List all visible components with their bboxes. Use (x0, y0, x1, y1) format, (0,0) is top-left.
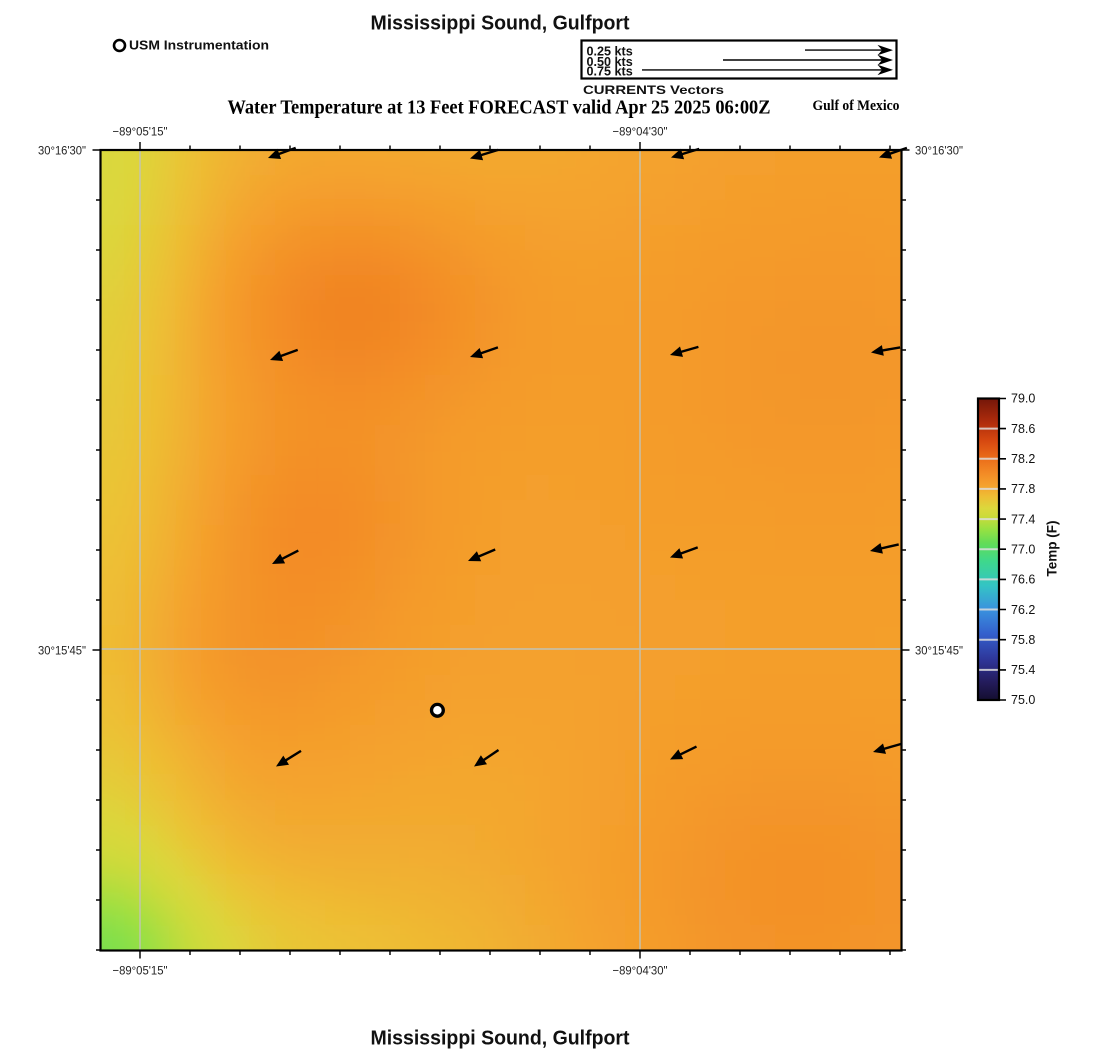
svg-text:75.4: 75.4 (1011, 663, 1035, 677)
svg-text:77.0: 77.0 (1011, 543, 1035, 557)
svg-text:−89°04'30": −89°04'30" (613, 964, 668, 978)
svg-text:Temp (F): Temp (F) (1045, 521, 1060, 577)
svg-text:−89°05'15": −89°05'15" (113, 124, 168, 138)
svg-text:Water Temperature at 13 Feet F: Water Temperature at 13 Feet FORECAST va… (228, 97, 771, 119)
svg-text:30°16'30": 30°16'30" (38, 144, 86, 158)
svg-text:Mississippi Sound, Gulfport: Mississippi Sound, Gulfport (371, 12, 630, 35)
svg-text:30°16'30": 30°16'30" (915, 144, 963, 158)
svg-text:Mississippi Sound, Gulfport: Mississippi Sound, Gulfport (371, 1027, 630, 1050)
svg-text:77.8: 77.8 (1011, 482, 1035, 496)
svg-text:−89°04'30": −89°04'30" (613, 124, 668, 138)
svg-text:75.8: 75.8 (1011, 633, 1035, 647)
svg-text:78.6: 78.6 (1011, 422, 1035, 436)
svg-text:76.6: 76.6 (1011, 573, 1035, 587)
svg-text:76.2: 76.2 (1011, 603, 1035, 617)
svg-text:30°15'45": 30°15'45" (38, 644, 86, 658)
svg-text:79.0: 79.0 (1011, 392, 1035, 406)
svg-text:−89°05'15": −89°05'15" (113, 964, 168, 978)
svg-text:0.75 kts: 0.75 kts (587, 65, 633, 79)
svg-text:USM Instrumentation: USM Instrumentation (129, 37, 269, 52)
svg-text:Gulf of Mexico: Gulf of Mexico (813, 98, 900, 114)
svg-text:77.4: 77.4 (1011, 512, 1035, 526)
svg-text:CURRENTS Vectors: CURRENTS Vectors (583, 83, 724, 97)
svg-text:78.2: 78.2 (1011, 452, 1035, 466)
svg-text:30°15'45": 30°15'45" (915, 644, 963, 658)
svg-text:75.0: 75.0 (1011, 693, 1035, 707)
